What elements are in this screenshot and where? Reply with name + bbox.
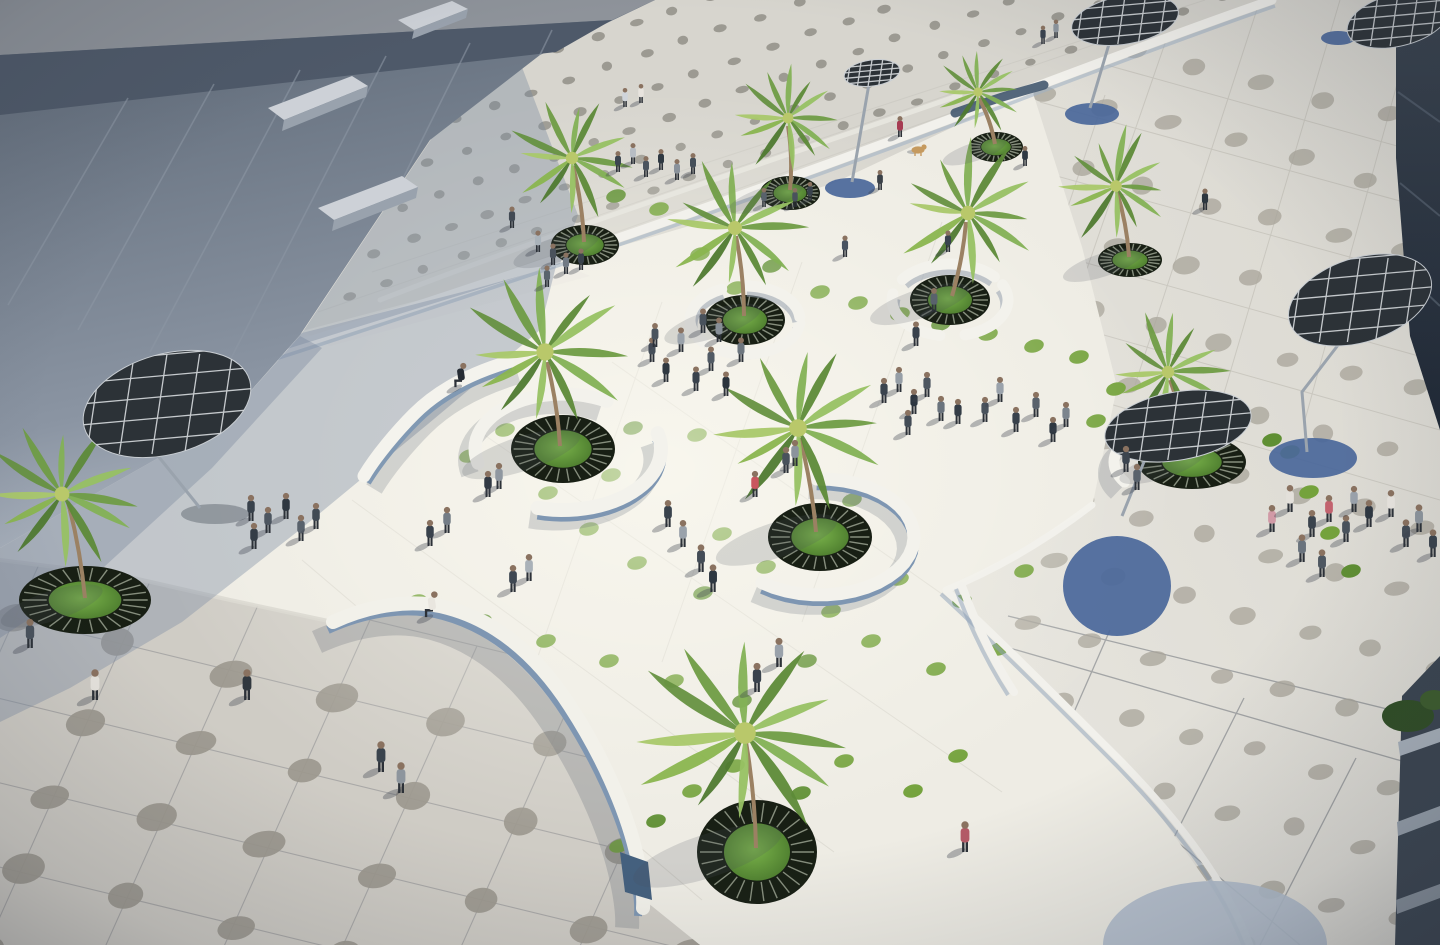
person-legs	[314, 521, 316, 530]
person-legs	[1388, 508, 1390, 517]
person-body	[282, 499, 289, 511]
person-head	[708, 346, 714, 352]
person-body	[622, 92, 627, 101]
person-head	[762, 188, 767, 193]
person-legs	[914, 406, 916, 414]
person-legs	[402, 783, 404, 793]
person-legs	[299, 533, 301, 542]
person-legs	[843, 250, 845, 257]
person-body	[677, 333, 684, 345]
person-body	[1012, 412, 1019, 424]
person-body	[658, 154, 664, 164]
person-body	[697, 550, 705, 563]
person-legs	[796, 458, 798, 467]
person-head	[808, 182, 813, 187]
person-legs	[27, 639, 29, 649]
person-legs	[252, 541, 254, 550]
plaza-aerial-render	[0, 0, 1440, 945]
person-legs	[266, 525, 268, 534]
person-legs	[679, 344, 681, 352]
person-legs	[526, 572, 528, 581]
pole-shadow	[181, 504, 249, 524]
person-legs	[985, 414, 987, 422]
person-legs	[428, 538, 430, 547]
person-legs	[287, 511, 289, 520]
person-legs	[1430, 548, 1432, 557]
person-body	[1298, 540, 1306, 553]
person-head	[690, 153, 695, 158]
person-head	[1033, 392, 1039, 398]
person-head	[931, 288, 937, 294]
person-body	[912, 327, 919, 339]
person-legs	[551, 258, 553, 265]
person-legs	[378, 762, 380, 772]
person-body	[1032, 397, 1039, 409]
person-body	[792, 192, 797, 201]
person-body	[509, 211, 515, 221]
person-legs	[510, 583, 512, 592]
person-legs	[983, 414, 985, 422]
person-legs	[1434, 548, 1436, 557]
person-body	[699, 314, 706, 326]
person-legs	[1203, 203, 1205, 210]
person-legs	[754, 683, 756, 693]
person-legs	[1287, 503, 1289, 512]
person-head	[693, 366, 699, 372]
person-body	[961, 828, 970, 843]
person-body	[377, 748, 386, 763]
person-legs	[661, 163, 663, 170]
person-body	[923, 377, 930, 389]
person-head	[792, 440, 798, 446]
person-legs	[1330, 513, 1332, 522]
person-legs	[512, 221, 514, 228]
person-legs	[709, 363, 711, 371]
person-body	[652, 328, 659, 339]
person-legs	[248, 690, 250, 700]
person-head	[924, 372, 930, 378]
person-legs	[1138, 482, 1140, 491]
person-head	[913, 321, 919, 327]
person-body	[895, 372, 902, 384]
person-legs	[1025, 160, 1027, 167]
person-body	[643, 161, 649, 171]
person-head	[283, 493, 289, 499]
person-legs	[644, 170, 646, 177]
person-legs	[719, 334, 721, 342]
person-legs	[793, 458, 795, 467]
person-legs	[916, 338, 918, 346]
person-legs	[675, 173, 677, 180]
person-head	[1202, 189, 1207, 194]
person-legs	[914, 338, 916, 346]
person-legs	[664, 374, 666, 382]
person-legs	[897, 384, 899, 392]
person-legs	[1056, 32, 1057, 38]
person-legs	[845, 250, 847, 257]
person-legs	[1034, 409, 1036, 417]
person-body	[484, 477, 491, 489]
person-body	[707, 352, 714, 364]
person-legs	[681, 344, 683, 352]
person-head	[251, 523, 257, 529]
person-body	[761, 192, 766, 201]
person-legs	[448, 525, 450, 534]
person-head	[710, 564, 717, 571]
person-legs	[941, 413, 943, 421]
person-legs	[431, 538, 433, 547]
person-legs	[581, 263, 583, 270]
person-head	[544, 266, 549, 271]
person-legs	[701, 325, 703, 333]
person-legs	[1051, 434, 1053, 442]
person-legs	[249, 513, 251, 522]
person-legs	[1269, 523, 1271, 532]
person-head	[738, 337, 744, 343]
person-head	[905, 410, 911, 416]
person-legs	[1313, 528, 1315, 537]
person-legs	[566, 267, 568, 274]
person-body	[690, 158, 696, 168]
person-legs	[925, 389, 927, 397]
person-head	[716, 317, 722, 323]
person-legs	[1309, 528, 1311, 537]
person-body	[563, 257, 569, 267]
person-body	[662, 363, 669, 375]
person-legs	[703, 325, 705, 333]
person-legs	[726, 388, 728, 396]
person-body	[1350, 492, 1357, 504]
person-legs	[1066, 419, 1068, 427]
person-legs	[669, 518, 671, 527]
person-legs	[680, 538, 682, 547]
person-head	[298, 515, 304, 521]
person-legs	[677, 173, 679, 180]
person-legs	[793, 201, 794, 207]
person-head	[982, 397, 988, 403]
person-legs	[1323, 568, 1325, 577]
person-head	[91, 669, 98, 676]
person-body	[679, 526, 687, 539]
person-legs	[564, 267, 566, 274]
person-legs	[1319, 568, 1321, 577]
person-legs	[717, 334, 719, 342]
person-body	[722, 377, 729, 389]
person-legs	[538, 245, 540, 252]
person-legs	[702, 563, 704, 572]
person-body	[1202, 193, 1208, 203]
person-head	[1050, 417, 1056, 423]
person-legs	[625, 101, 626, 107]
person-legs	[948, 245, 950, 252]
person-body	[877, 174, 883, 183]
person-head	[431, 591, 437, 597]
person-legs	[284, 511, 286, 520]
person-body	[91, 676, 100, 691]
person-legs	[776, 658, 778, 668]
person-body	[674, 164, 680, 174]
person-head	[550, 244, 555, 249]
person-legs	[579, 263, 581, 270]
person-legs	[795, 201, 796, 207]
person-legs	[633, 157, 635, 164]
person-legs	[753, 489, 755, 498]
person-head	[1023, 146, 1028, 151]
palm-crown-center	[566, 152, 578, 164]
person-body	[1053, 24, 1058, 33]
person-legs	[998, 394, 1000, 402]
person-body	[954, 404, 961, 416]
person-legs	[510, 221, 512, 228]
person-legs	[1064, 419, 1066, 427]
person-head	[510, 565, 517, 572]
person-head	[377, 741, 384, 748]
person-head	[842, 236, 847, 241]
person-head	[700, 308, 706, 314]
person-legs	[454, 380, 456, 388]
person-legs	[691, 167, 693, 174]
person-head	[313, 503, 319, 509]
person-body	[638, 88, 643, 97]
person-body	[664, 506, 672, 519]
person-head	[793, 188, 798, 193]
person-legs	[1135, 482, 1137, 491]
person-head	[496, 463, 502, 469]
person-legs	[500, 481, 502, 490]
person-legs	[536, 245, 538, 252]
person-legs	[1023, 160, 1025, 167]
person-legs	[966, 842, 968, 852]
person-legs	[1299, 553, 1301, 562]
person-body	[715, 323, 722, 335]
person-legs	[939, 413, 941, 421]
person-head	[248, 495, 254, 501]
person-head	[680, 520, 687, 527]
person-legs	[445, 525, 447, 534]
person-legs	[96, 690, 98, 700]
person-legs	[398, 783, 400, 793]
person-legs	[1303, 553, 1305, 562]
person-legs	[652, 354, 654, 362]
person-legs	[1355, 504, 1357, 513]
person-head	[955, 399, 961, 405]
person-legs	[1407, 538, 1409, 547]
person-legs	[31, 639, 33, 649]
person-head	[961, 821, 968, 828]
person-head	[1269, 505, 1276, 512]
person-head	[1388, 490, 1395, 497]
person-body	[1429, 535, 1437, 548]
person-body	[775, 644, 783, 658]
person-legs	[956, 416, 958, 424]
person-head	[783, 447, 789, 453]
person-legs	[92, 690, 94, 700]
person-legs	[899, 384, 901, 392]
person-legs	[1416, 523, 1418, 532]
person-legs	[1041, 38, 1042, 44]
person-legs	[962, 842, 964, 852]
person-body	[1133, 470, 1140, 482]
person-head	[623, 88, 628, 93]
person-legs	[1054, 32, 1055, 38]
person-legs	[269, 525, 271, 534]
person-body	[630, 148, 636, 158]
person-legs	[927, 389, 929, 397]
person-head	[911, 389, 917, 395]
person-legs	[1036, 409, 1038, 417]
palm-crown-center	[536, 343, 553, 360]
person-legs	[882, 395, 884, 403]
pole-shadow	[1063, 536, 1171, 636]
person-head	[243, 669, 250, 676]
person-body	[1286, 491, 1294, 504]
person-head	[485, 471, 491, 477]
person-legs	[714, 583, 716, 592]
person-legs	[1273, 523, 1275, 532]
person-head	[897, 116, 902, 121]
person-body	[937, 401, 944, 413]
person-head	[526, 554, 533, 561]
person-body	[842, 240, 848, 250]
person-legs	[912, 406, 914, 414]
person-legs	[545, 280, 547, 287]
person-head	[1351, 486, 1357, 492]
person-legs	[252, 513, 254, 522]
person-legs	[1016, 424, 1018, 432]
person-legs	[530, 572, 532, 581]
person-legs	[659, 163, 661, 170]
person-legs	[808, 195, 809, 201]
person-head	[460, 363, 466, 369]
person-body	[931, 293, 938, 304]
person-head	[615, 151, 620, 156]
palm-crown-center	[728, 221, 742, 235]
person-legs	[646, 170, 648, 177]
person-body	[1387, 496, 1395, 509]
person-head	[578, 249, 583, 254]
person-body	[782, 453, 789, 465]
person-legs	[810, 195, 811, 201]
person-head	[1309, 510, 1316, 517]
person-legs	[932, 304, 934, 312]
person-legs	[898, 130, 900, 137]
person-body	[544, 270, 550, 280]
person-legs	[244, 690, 246, 700]
person-body	[897, 121, 903, 131]
person-head	[630, 143, 635, 148]
person-body	[397, 769, 406, 784]
palm-crown-center	[55, 487, 70, 502]
person-head	[1416, 504, 1423, 511]
person-head	[753, 663, 760, 670]
person-legs	[946, 245, 948, 252]
person-head	[997, 377, 1003, 383]
person-head	[1054, 20, 1058, 24]
person-legs	[1053, 434, 1055, 442]
person-legs	[693, 167, 695, 174]
person-legs	[1000, 394, 1002, 402]
person-body	[443, 513, 450, 525]
person-body	[1365, 506, 1373, 519]
person-head	[509, 207, 514, 212]
person-legs	[317, 521, 319, 530]
person-head	[945, 231, 950, 236]
person-head	[1403, 519, 1410, 526]
person-legs	[1124, 464, 1126, 473]
person-head	[1319, 549, 1326, 556]
person-body	[709, 570, 717, 583]
person-head	[427, 520, 433, 526]
person-legs	[655, 339, 657, 347]
person-legs	[1291, 503, 1293, 512]
person-legs	[1392, 508, 1394, 517]
person-body	[1122, 452, 1129, 464]
person-legs	[639, 97, 640, 103]
person-legs	[694, 383, 696, 391]
person-legs	[741, 354, 743, 362]
person-legs	[780, 658, 782, 668]
plaza-scene	[0, 0, 1440, 945]
dog-head	[921, 144, 926, 149]
person-head	[1299, 534, 1306, 541]
person-head	[652, 323, 658, 329]
person-legs	[711, 363, 713, 371]
person-legs	[1420, 523, 1422, 532]
person-head	[444, 507, 450, 513]
person-legs	[739, 354, 741, 362]
person-legs	[698, 563, 700, 572]
person-legs	[665, 518, 667, 527]
person-head	[639, 84, 644, 89]
person-legs	[762, 201, 763, 207]
person-body	[243, 676, 252, 691]
person-legs	[1127, 464, 1129, 473]
person-body	[751, 477, 758, 489]
person-legs	[724, 388, 726, 396]
palm-crown-center	[961, 206, 975, 220]
person-legs	[1205, 203, 1207, 210]
palm-crown-center	[973, 87, 982, 96]
person-head	[896, 367, 902, 373]
person-legs	[1352, 504, 1354, 513]
person-head	[938, 396, 944, 402]
person-body	[1062, 407, 1069, 419]
person-body	[737, 343, 744, 355]
person-body	[1342, 521, 1350, 534]
palm-crown-center	[1110, 180, 1122, 192]
person-legs	[908, 427, 910, 435]
person-legs	[255, 541, 257, 550]
person-head	[881, 378, 887, 384]
person-body	[807, 186, 812, 195]
person-body	[1325, 501, 1333, 514]
person-body	[791, 446, 798, 458]
person-legs	[547, 280, 549, 287]
person-legs	[666, 374, 668, 382]
palm-crown-center	[783, 113, 794, 124]
person-head	[674, 159, 679, 164]
person-legs	[382, 762, 384, 772]
person-legs	[764, 201, 765, 207]
person-legs	[631, 157, 633, 164]
person-legs	[906, 427, 908, 435]
person-head	[397, 762, 404, 769]
person-body	[945, 235, 951, 245]
person-body	[1040, 30, 1045, 39]
person-legs	[878, 184, 880, 191]
person-body	[525, 560, 533, 573]
person-head	[26, 619, 33, 626]
